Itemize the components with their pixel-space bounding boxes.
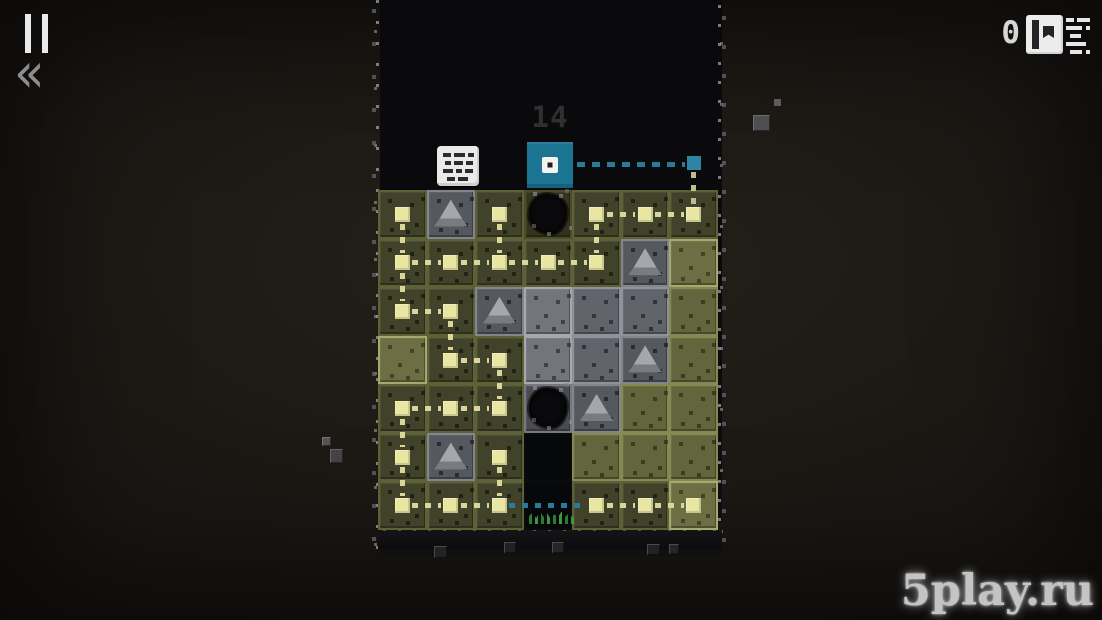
- debris-pixel: [647, 544, 660, 555]
- tile-r1c5[interactable]: [572, 190, 621, 239]
- tile-r3c5[interactable]: [572, 287, 621, 336]
- debris-pixel: [753, 115, 770, 131]
- debris-pixel: [330, 449, 343, 463]
- tile-r1c6[interactable]: [621, 190, 670, 239]
- tile-r7c2[interactable]: [427, 481, 476, 530]
- debris-pixel: [322, 437, 331, 446]
- tile-r5c7[interactable]: [669, 384, 718, 433]
- tile-r2c7[interactable]: [669, 239, 718, 288]
- tile-r3c4[interactable]: [524, 287, 573, 336]
- tile-r6c5[interactable]: [572, 433, 621, 482]
- tile-r6c7[interactable]: [669, 433, 718, 482]
- tile-r7c6[interactable]: [621, 481, 670, 530]
- tile-r7c7[interactable]: [669, 481, 718, 530]
- tile-r2c5[interactable]: [572, 239, 621, 288]
- tile-r5c1[interactable]: [378, 384, 427, 433]
- debris-pixel: [774, 99, 781, 106]
- tile-r3c7[interactable]: [669, 287, 718, 336]
- player-piece[interactable]: [527, 142, 573, 188]
- tile-r5c6[interactable]: [621, 384, 670, 433]
- pyramid-block: [434, 443, 468, 470]
- pyramid-block: [434, 200, 468, 227]
- tile-r2c1[interactable]: [378, 239, 427, 288]
- tile-r4c1[interactable]: [378, 336, 427, 385]
- tile-r4c3[interactable]: [475, 336, 524, 385]
- flag-count: 0: [972, 15, 1020, 51]
- tile-r3c1[interactable]: [378, 287, 427, 336]
- board-right-edge-texture: [717, 0, 728, 550]
- game-screen: 14 « 0 5play.ru: [0, 0, 1102, 620]
- watermark: 5play.ru: [901, 566, 1094, 616]
- tile-r3c3[interactable]: [475, 287, 524, 336]
- pyramid-block: [628, 345, 662, 372]
- tile-r1c2[interactable]: [427, 190, 476, 239]
- level-list-icon[interactable]: [1066, 16, 1096, 56]
- board-grid[interactable]: [378, 190, 718, 530]
- tile-r3c6[interactable]: [621, 287, 670, 336]
- pyramid-block: [580, 394, 614, 421]
- player-core: [542, 157, 558, 173]
- tile-r7c1[interactable]: [378, 481, 427, 530]
- pyramid-block: [482, 297, 516, 324]
- debris-pixel: [434, 546, 447, 558]
- tile-r6c1[interactable]: [378, 433, 427, 482]
- pit-hole: [529, 194, 568, 234]
- tile-r4c6[interactable]: [621, 336, 670, 385]
- tile-r5c4[interactable]: [524, 384, 573, 433]
- debris-pixel: [669, 544, 679, 554]
- tile-r4c2[interactable]: [427, 336, 476, 385]
- tile-r1c1[interactable]: [378, 190, 427, 239]
- tile-r6c2[interactable]: [427, 433, 476, 482]
- rewind-button[interactable]: «: [14, 46, 45, 101]
- tile-r5c5[interactable]: [572, 384, 621, 433]
- tile-r5c2[interactable]: [427, 384, 476, 433]
- tile-r2c2[interactable]: [427, 239, 476, 288]
- player-path-dashes: [577, 162, 685, 167]
- player-core-dot: [548, 163, 553, 168]
- tile-r4c4[interactable]: [524, 336, 573, 385]
- tile-r2c3[interactable]: [475, 239, 524, 288]
- tile-r3c2[interactable]: [427, 287, 476, 336]
- tile-r1c3[interactable]: [475, 190, 524, 239]
- pit-hole: [529, 388, 568, 428]
- flag-pole-icon: [1032, 20, 1039, 49]
- checkpoint-drop-dashes: [691, 172, 696, 206]
- tile-r4c7[interactable]: [669, 336, 718, 385]
- tile-r6c6[interactable]: [621, 433, 670, 482]
- pyramid-block: [628, 248, 662, 275]
- tile-r4c5[interactable]: [572, 336, 621, 385]
- move-counter: 14: [505, 100, 595, 134]
- tile-r7c5[interactable]: [572, 481, 621, 530]
- tile-r2c6[interactable]: [621, 239, 670, 288]
- tile-r1c4[interactable]: [524, 190, 573, 239]
- checkpoint-square: [687, 156, 701, 170]
- tile-r7c3[interactable]: [475, 481, 524, 530]
- debris-pixel: [552, 542, 564, 553]
- tile-r6c4[interactable]: [524, 433, 573, 482]
- tile-r5c3[interactable]: [475, 384, 524, 433]
- debris-pixel: [504, 542, 516, 553]
- tile-r6c3[interactable]: [475, 433, 524, 482]
- flag-level-button[interactable]: [1026, 15, 1063, 54]
- flag-icon: [1043, 26, 1054, 38]
- grate-tile[interactable]: [437, 146, 479, 186]
- tile-r2c4[interactable]: [524, 239, 573, 288]
